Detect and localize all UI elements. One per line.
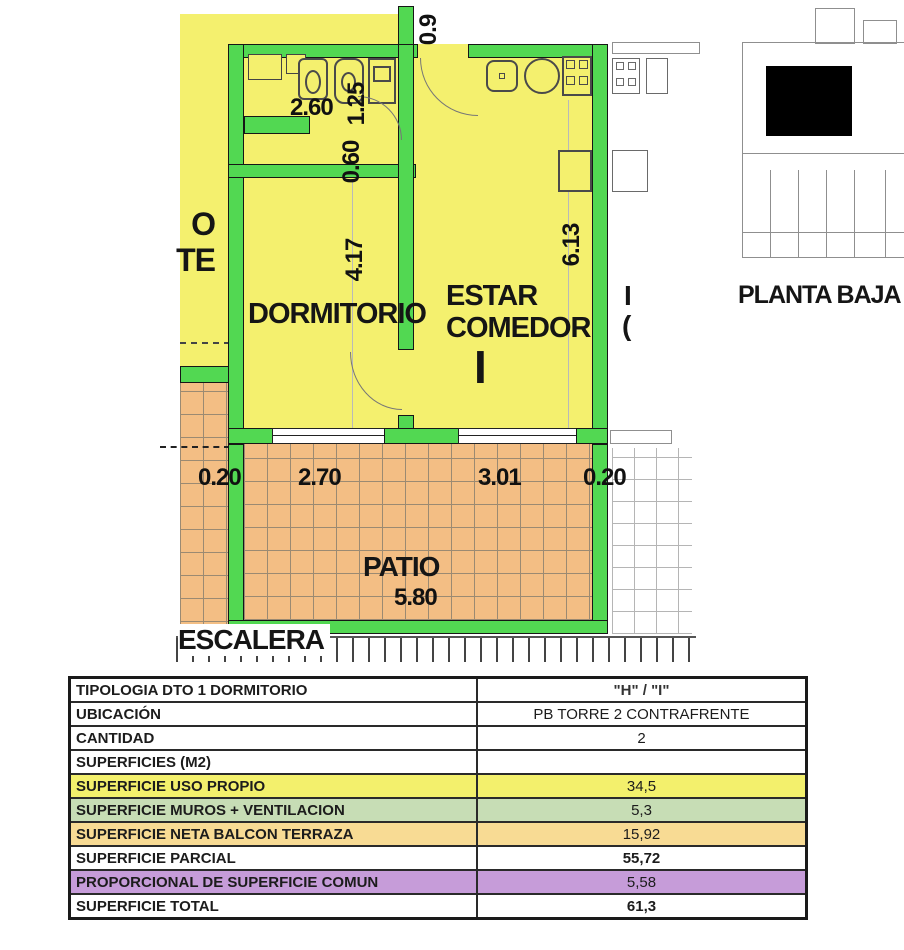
caption-text: PLANTA BAJA	[738, 281, 901, 309]
adjacent-fridge-icon	[612, 150, 648, 192]
floorplan-sheet: { "colors": { "unit_fill": "#F4F06E", "w…	[0, 0, 904, 950]
table-row: SUPERFICIES (M2)	[70, 750, 807, 774]
window-line	[273, 435, 385, 436]
dim-bath-width: 2.60	[290, 94, 333, 122]
dim-hall-width: 0.60	[338, 127, 366, 197]
row-value: 5,58	[477, 870, 807, 894]
row-value	[477, 750, 807, 774]
key-plan-outline	[742, 154, 904, 258]
adjacent-stove-burner-icon	[628, 78, 636, 86]
row-value: 15,92	[477, 822, 807, 846]
row-value: 34,5	[477, 774, 807, 798]
window-line	[459, 435, 577, 436]
dim-dorm-width: 2.70	[298, 464, 341, 492]
adjacent-stove-burner-icon	[628, 62, 636, 70]
key-plan-line	[854, 170, 855, 258]
adjacent-stove-burner-icon	[616, 62, 624, 70]
vanity-basin-icon	[373, 66, 391, 82]
key-plan-outline	[815, 8, 855, 44]
window	[272, 428, 386, 444]
partial-text: (	[622, 310, 630, 341]
toilet-bowl-icon	[305, 70, 321, 94]
dormitorio-label: DORMITORIO	[248, 298, 426, 331]
partial-text: I	[624, 280, 631, 311]
fridge-icon	[558, 150, 592, 192]
stove-burner-icon	[579, 60, 588, 69]
table-row: SUPERFICIE PARCIAL55,72	[70, 846, 807, 870]
row-label: SUPERFICIES (M2)	[70, 750, 478, 774]
table-row: TIPOLOGIA DTO 1 DORMITORIO"H" / "I"	[70, 678, 807, 703]
row-value: "H" / "I"	[477, 678, 807, 703]
table-row: SUPERFICIE TOTAL61,3	[70, 894, 807, 919]
partial-text: O	[191, 206, 215, 242]
key-plan-outline	[863, 20, 897, 44]
partial-mark: I	[624, 280, 631, 312]
table-row: CANTIDAD2	[70, 726, 807, 750]
wall	[228, 164, 416, 178]
partial-text: TE	[176, 242, 215, 278]
dash-dot-line	[160, 446, 230, 448]
key-plan-line	[770, 170, 771, 258]
key-plan: PLANTA BAJA	[725, 0, 904, 320]
stove-burner-icon	[566, 60, 575, 69]
washbasin-round-icon	[524, 58, 560, 94]
key-plan-line	[798, 170, 799, 258]
dim-wall-left: 0.20	[198, 464, 241, 492]
dashed-line	[180, 342, 230, 344]
key-plan-line	[885, 170, 886, 258]
adjacent-stove-burner-icon	[616, 78, 624, 86]
closet	[248, 54, 282, 80]
row-label: PROPORCIONAL DE SUPERFICIE COMUN	[70, 870, 478, 894]
key-plan-line	[742, 232, 904, 233]
row-label: CANTIDAD	[70, 726, 478, 750]
escalera-label: ESCALERA	[178, 624, 330, 656]
dim-patio-width: 5.80	[394, 584, 437, 612]
adjacent-room-label-partial: O TE	[160, 206, 215, 278]
kitchen-sink-drain-icon	[499, 73, 505, 79]
room-label-text: I	[474, 341, 486, 393]
wall	[576, 428, 608, 444]
patio-label: PATIO	[363, 551, 439, 583]
dim-estar-length: 6.13	[558, 210, 586, 280]
row-label: SUPERFICIE MUROS + VENTILACION	[70, 798, 478, 822]
unit-mark-label: I	[474, 340, 486, 394]
room-label-text: ESTAR	[446, 280, 537, 312]
row-value: 5,3	[477, 798, 807, 822]
stove-burner-icon	[579, 76, 588, 85]
window	[458, 428, 578, 444]
row-label: SUPERFICIE USO PROPIO	[70, 774, 478, 798]
dim-top-width: 0.9	[415, 0, 443, 65]
spec-table: TIPOLOGIA DTO 1 DORMITORIO"H" / "I" UBIC…	[68, 676, 808, 920]
key-plan-unit-highlight	[766, 66, 852, 136]
key-plan-line	[826, 170, 827, 258]
dim-wall-right: 0.20	[583, 464, 626, 492]
row-value: 61,3	[477, 894, 807, 919]
wall	[180, 366, 230, 383]
floor-plan: O TE	[0, 0, 904, 662]
row-label: SUPERFICIE PARCIAL	[70, 846, 478, 870]
wall	[228, 44, 244, 444]
row-value: 55,72	[477, 846, 807, 870]
adjacent-wall-line	[610, 430, 672, 444]
stove-burner-icon	[566, 76, 575, 85]
estar-comedor-label: ESTAR COMEDOR	[446, 280, 590, 344]
room-label-text: COMEDOR	[446, 312, 590, 344]
dim-estar-width: 3.01	[478, 464, 521, 492]
adjacent-unit-left	[180, 14, 230, 366]
room-label-text: PATIO	[363, 551, 439, 582]
partial-mark: (	[622, 310, 630, 342]
room-label-text: DORMITORIO	[248, 298, 426, 330]
row-label: SUPERFICIE TOTAL	[70, 894, 478, 919]
adjacent-wall-line	[612, 42, 700, 54]
wall	[228, 428, 274, 444]
wall	[384, 428, 460, 444]
wall	[592, 44, 608, 444]
room-label-text: ESCALERA	[178, 624, 324, 655]
table-row: SUPERFICIE MUROS + VENTILACION5,3	[70, 798, 807, 822]
table-row: UBICACIÓNPB TORRE 2 CONTRAFRENTE	[70, 702, 807, 726]
row-label: UBICACIÓN	[70, 702, 478, 726]
adjacent-stove-icon	[646, 58, 668, 94]
row-value: PB TORRE 2 CONTRAFRENTE	[477, 702, 807, 726]
row-label: TIPOLOGIA DTO 1 DORMITORIO	[70, 678, 478, 703]
dim-dorm-length: 4.17	[341, 225, 369, 295]
table-row: SUPERFICIE USO PROPIO34,5	[70, 774, 807, 798]
planta-baja-label: PLANTA BAJA	[738, 281, 901, 310]
table-row: PROPORCIONAL DE SUPERFICIE COMUN5,58	[70, 870, 807, 894]
table-row: SUPERFICIE NETA BALCON TERRAZA15,92	[70, 822, 807, 846]
row-value: 2	[477, 726, 807, 750]
adjacent-patio-left	[180, 383, 228, 645]
row-label: SUPERFICIE NETA BALCON TERRAZA	[70, 822, 478, 846]
unit-interior	[228, 44, 608, 444]
